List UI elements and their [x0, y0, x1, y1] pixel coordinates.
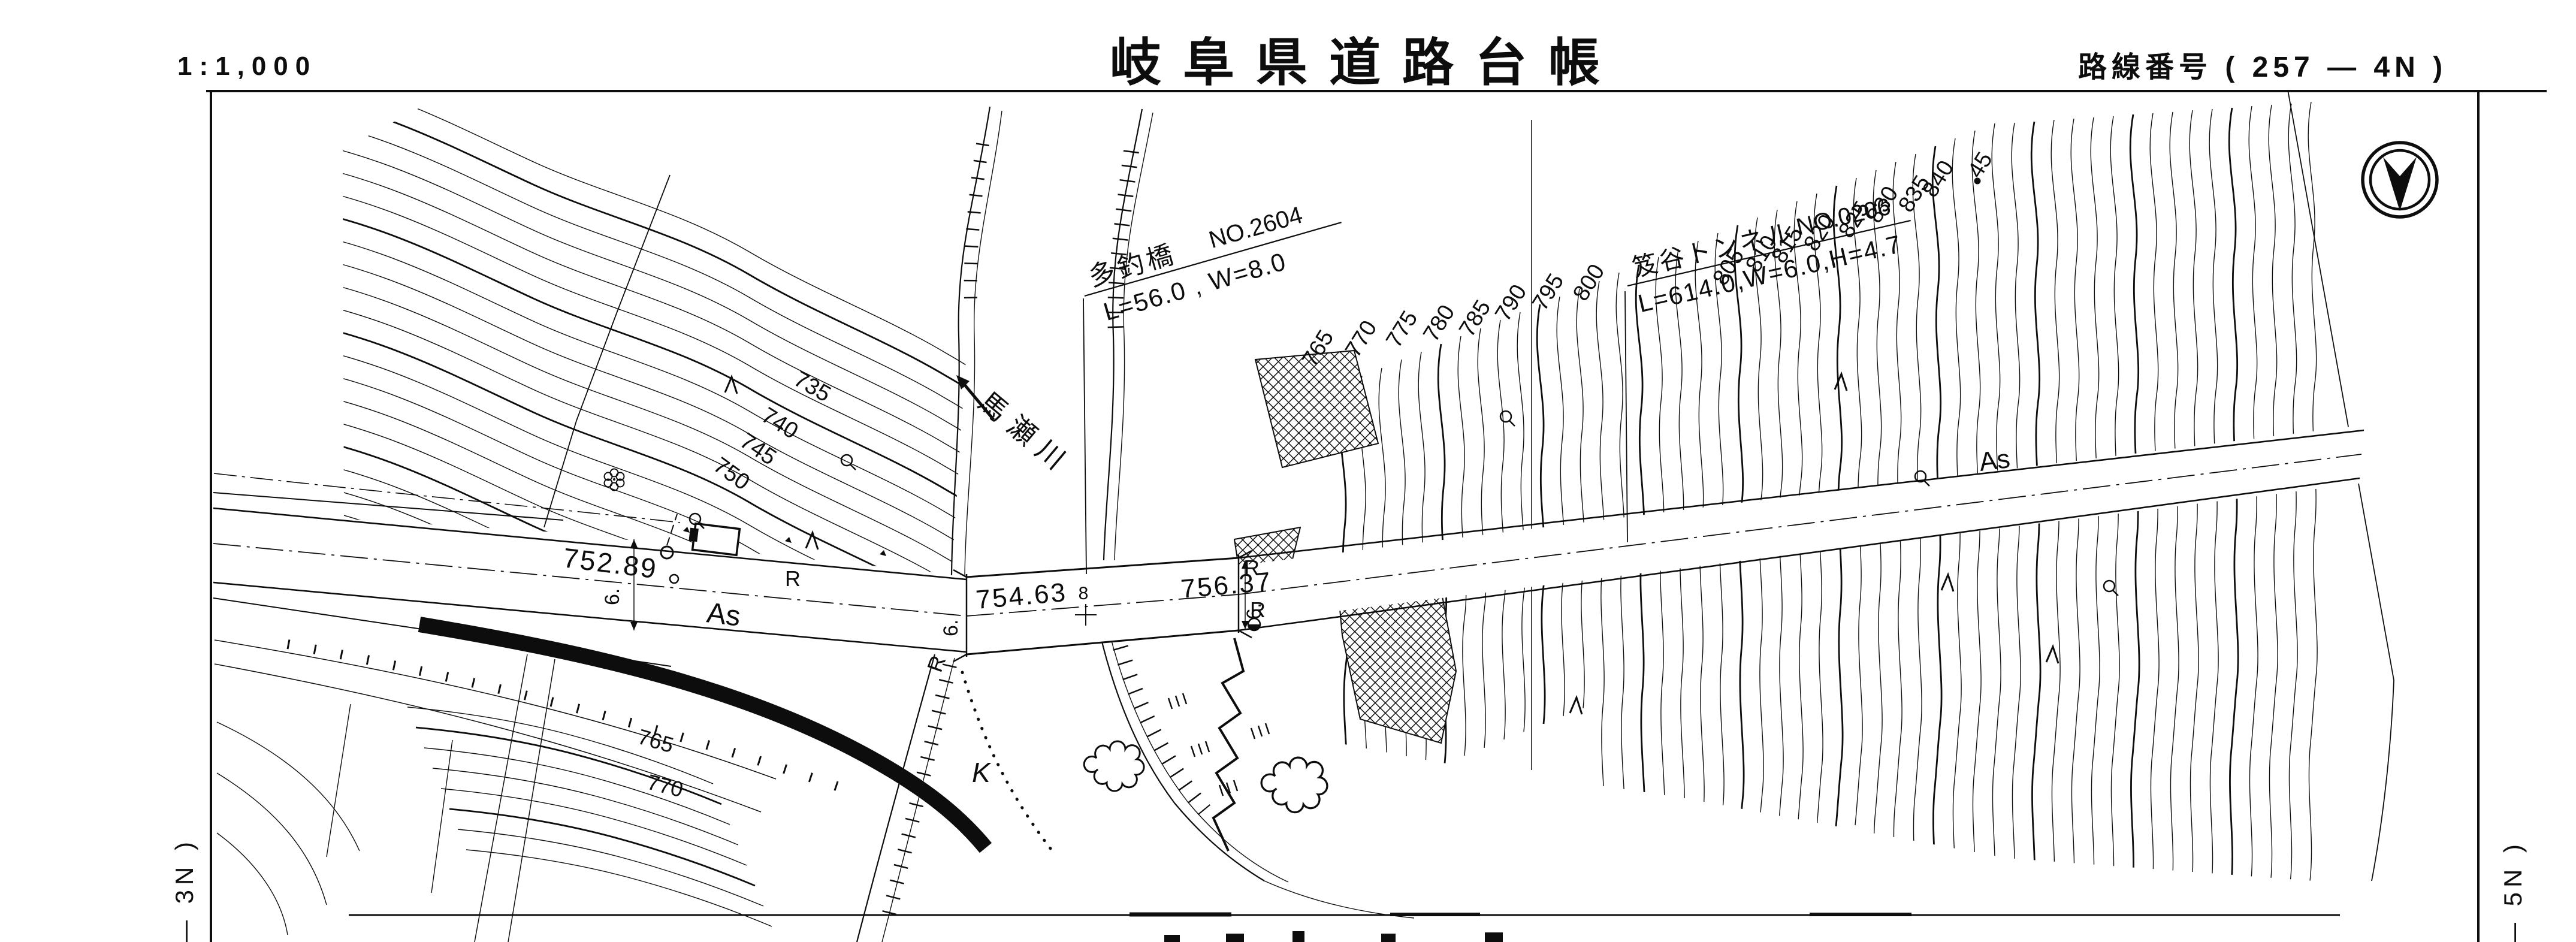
svg-text:800: 800	[1568, 260, 1609, 306]
svg-text:795: 795	[1527, 270, 1569, 315]
map-sheet: 1:1,000 岐阜県道路台帳 路線番号 ( 257 — 4N )	[0, 0, 2576, 942]
surface-label-as-left: As	[705, 597, 742, 632]
building-symbol	[688, 523, 740, 555]
cutoff-text-fragments	[1164, 931, 1503, 942]
elevation-label-752-89: 752.89	[561, 542, 678, 584]
svg-text:790: 790	[1490, 280, 1532, 326]
contour-lines-lower-left	[407, 707, 772, 926]
match-label-right: — 5N )	[2499, 840, 2527, 942]
letter-r-1: R	[785, 566, 801, 591]
contour-lines-left-hill	[300, 72, 1019, 840]
letter-k: K	[972, 757, 992, 788]
bush-symbols	[1084, 741, 1327, 813]
flower-symbol	[605, 469, 624, 491]
north-arrow-icon	[2363, 143, 2437, 217]
svg-text:770: 770	[645, 769, 685, 802]
svg-text:785: 785	[1454, 296, 1496, 342]
survey-boundary-left	[544, 175, 670, 527]
width-mark-2: 6.	[940, 620, 962, 636]
svg-text:780: 780	[1418, 301, 1460, 346]
rock-cliff	[1168, 638, 1269, 851]
width-mark-1: 6.	[601, 588, 624, 605]
svg-text:馬瀬川: 馬瀬川	[973, 386, 1079, 481]
letter-r-3: R	[1244, 555, 1260, 580]
road	[213, 430, 2364, 848]
svg-text:735: 735	[790, 366, 835, 407]
river-label: 馬瀬川	[956, 375, 1078, 481]
svg-text:765: 765	[635, 724, 677, 757]
masonry-wall-band	[419, 624, 986, 848]
letter-r-2: R	[922, 652, 950, 675]
match-label-left: — 3N )	[170, 837, 198, 942]
river-banks	[857, 107, 1414, 942]
svg-text:8: 8	[1079, 584, 1089, 603]
bottom-rule	[349, 914, 2340, 915]
svg-text:775: 775	[1381, 307, 1423, 352]
svg-text:750: 750	[709, 452, 754, 495]
map-drawing: — 3N ) — 5N )	[0, 0, 2576, 942]
letter-r-4: R	[1250, 597, 1266, 622]
bridge-number: NO.2604	[1206, 202, 1306, 253]
surface-label-as-right: As	[1977, 444, 2012, 477]
